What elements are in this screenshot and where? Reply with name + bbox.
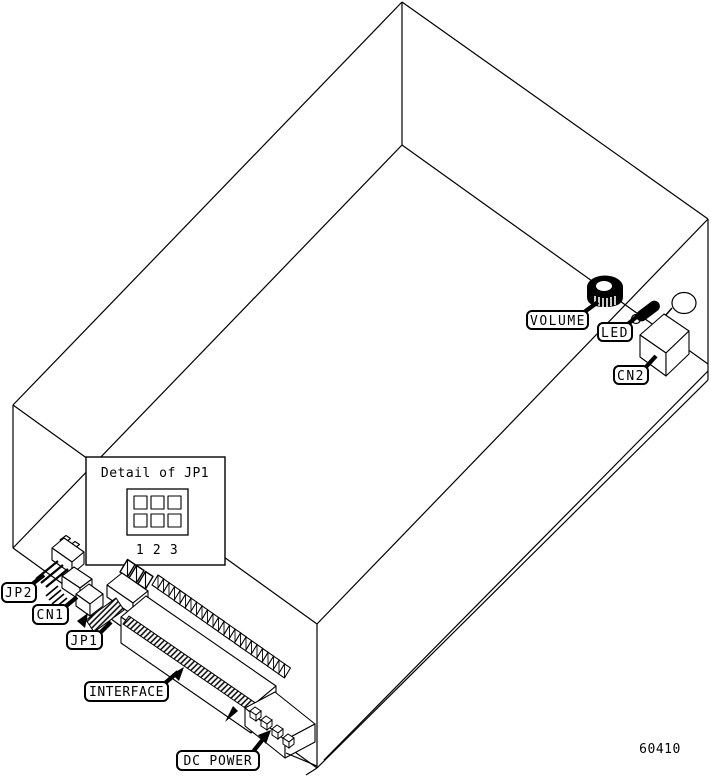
cn2-label-text: CN2 [617, 369, 645, 384]
dc-power-label: DC POWER [177, 751, 259, 770]
volume-knob [587, 276, 623, 308]
detail-inset-title: Detail of JP1 [101, 466, 209, 481]
jp1-pin1-arrow [77, 613, 88, 628]
figure-part-number: 60410 [639, 742, 681, 757]
jp2-label-text: JP2 [5, 586, 33, 601]
interface-label-text: INTERFACE [89, 685, 164, 700]
led-label-text: LED [601, 326, 629, 341]
pin-number-1: 1 [136, 543, 144, 558]
volume-label: VOLUME [527, 311, 588, 329]
diagram-page: Detail of JP1 1 2 3 [0, 0, 711, 776]
jp2-label: JP2 [2, 583, 36, 602]
jp1-label: JP1 [67, 631, 102, 649]
led-label: LED [598, 323, 632, 341]
pin-number-2: 2 [153, 543, 161, 558]
interface-label: INTERFACE [85, 682, 168, 701]
cn2-label: CN2 [614, 366, 648, 384]
jp1-label-text: JP1 [71, 634, 99, 649]
volume-label-text: VOLUME [530, 314, 586, 329]
chassis-outline [13, 2, 708, 775]
cn1-label: CN1 [33, 605, 68, 624]
detail-inset: Detail of JP1 1 2 3 [86, 457, 225, 565]
rear-panel-diagram: Detail of JP1 1 2 3 [0, 0, 711, 776]
pin-number-3: 3 [170, 543, 178, 558]
cn1-label-text: CN1 [37, 608, 65, 623]
dc-power-label-text: DC POWER [183, 754, 252, 769]
